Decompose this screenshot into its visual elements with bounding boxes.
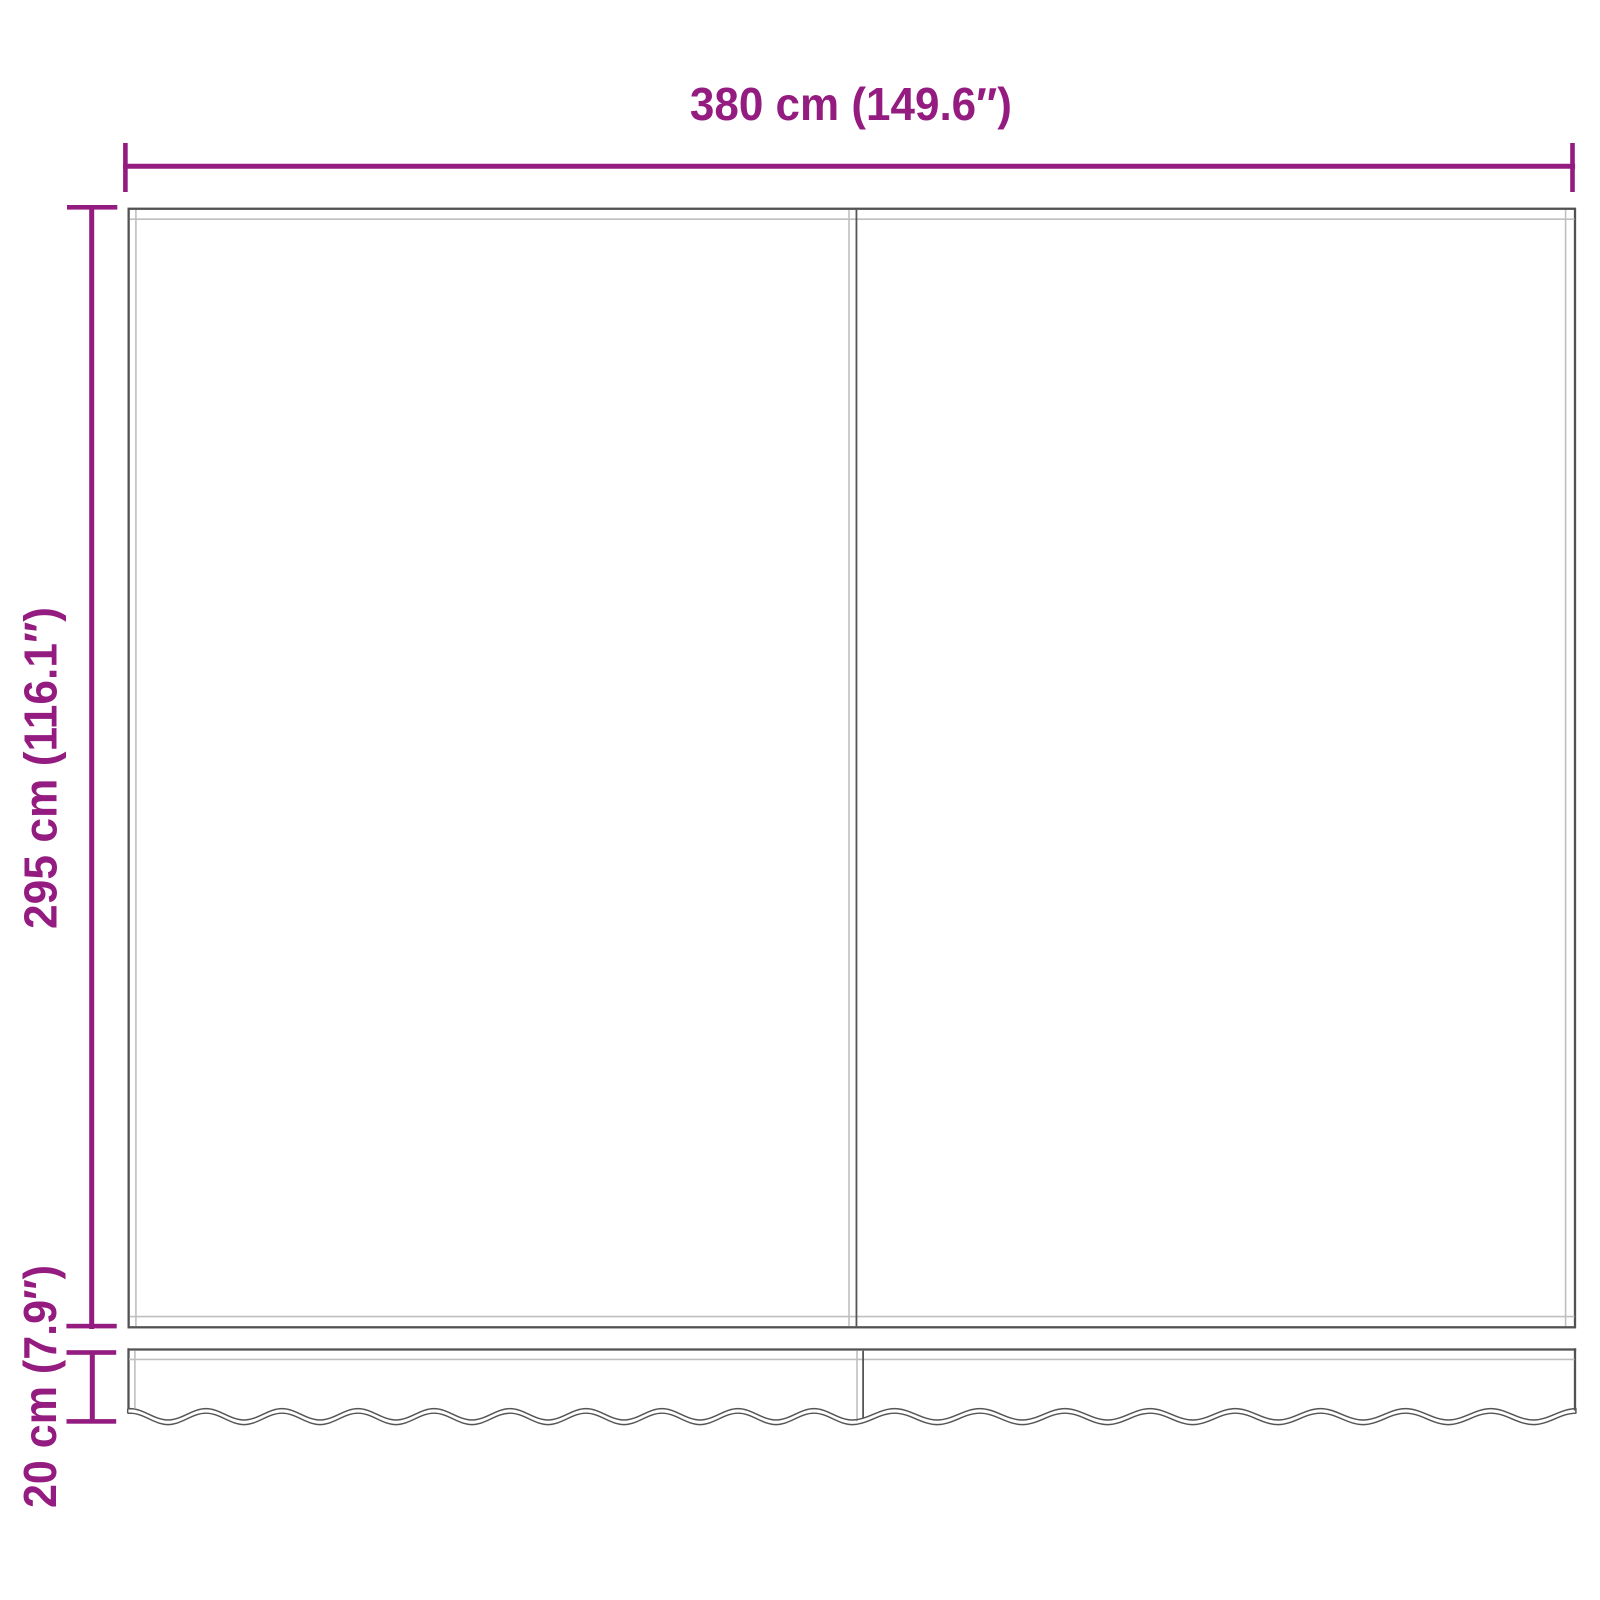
svg-text:295 cm (116.1″): 295 cm (116.1″) [14, 607, 66, 929]
svg-text:20 cm (7.9″): 20 cm (7.9″) [14, 1265, 66, 1508]
svg-text:380 cm (149.6″): 380 cm (149.6″) [690, 78, 1012, 130]
